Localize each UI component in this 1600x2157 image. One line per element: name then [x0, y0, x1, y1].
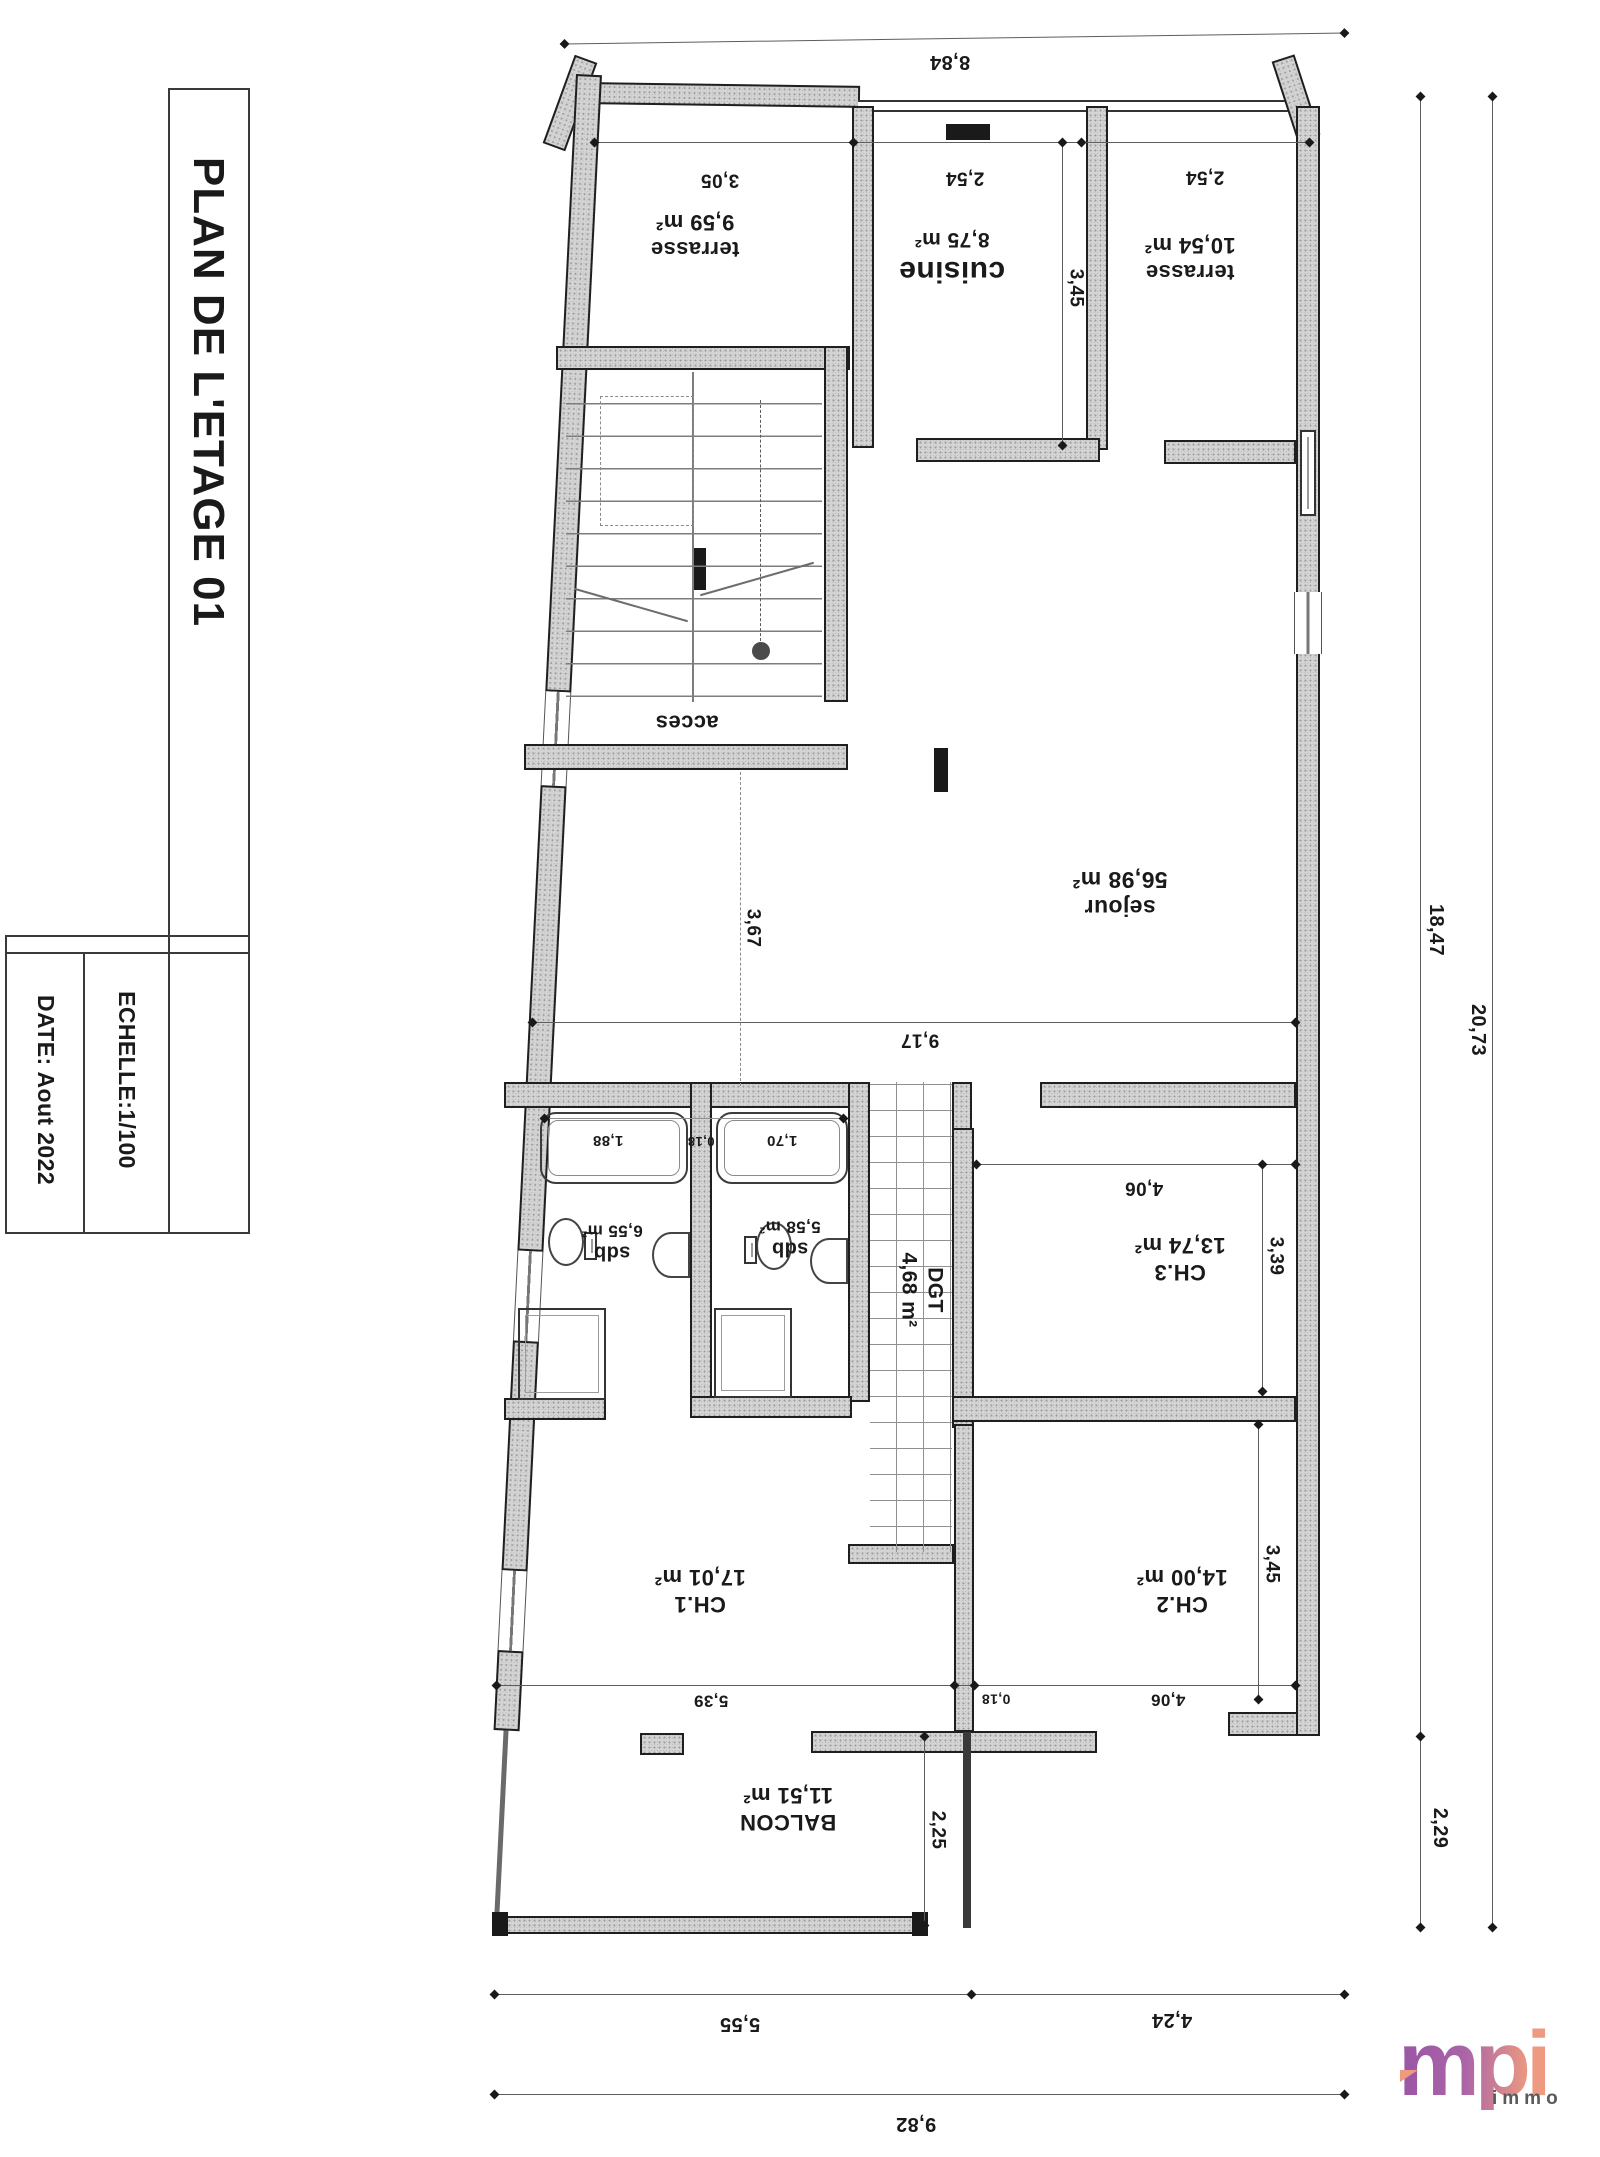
room-name: acces [655, 709, 718, 736]
dim-tick [1077, 138, 1087, 148]
dim-line-bottom-split [494, 1994, 1345, 1995]
wall-stair-top [556, 346, 850, 370]
room-area: 11,51 m² [740, 1781, 837, 1808]
dim-line-ch3-depth [1262, 1164, 1263, 1392]
page-title: PLAN DE L'ETAGE 01 [181, 157, 235, 627]
room-terrasse-left: terrasse 9,59 m² [651, 208, 740, 262]
room-sdb-left: sdb 6,55 m² [581, 1219, 642, 1264]
room-area: 4,68 m² [896, 1252, 922, 1327]
room-ch2: CH.2 14,00 m² [1136, 1563, 1227, 1617]
room-area: 5,58 m² [759, 1215, 820, 1236]
dim-line-ch3-width [976, 1164, 1296, 1165]
stair-break-line [700, 562, 814, 596]
room-name: DGT [922, 1252, 948, 1327]
room-name: BALCON [740, 1808, 837, 1835]
room-name: sdb [759, 1236, 820, 1260]
dim-cuisine-depth: 3,45 [1064, 269, 1087, 308]
window-right [1294, 592, 1322, 654]
dim-top-width: 8,84 [930, 50, 971, 74]
dim-tick [967, 1990, 977, 2000]
logo-wedge [1400, 2070, 1418, 2082]
wall-bath-top-left [504, 1082, 868, 1108]
wall-right [1296, 106, 1320, 1736]
room-area: 13,74 m² [1134, 1231, 1225, 1258]
dim-side-main: 18,47 [1424, 904, 1448, 956]
window-left [498, 1570, 528, 1651]
dim-balcony-depth: 2,25 [926, 1811, 949, 1850]
dim-ch3-width: 4,06 [1125, 1176, 1164, 1199]
wall-bath-top-right [1040, 1082, 1296, 1108]
toilet-left [548, 1218, 584, 1266]
dim-line-terraces [594, 142, 1310, 143]
scale-label: ECHELLE:1/100 [113, 991, 141, 1169]
titleblock-line [83, 952, 85, 1234]
stair-start-dot [752, 642, 770, 660]
titleblock-line [5, 935, 7, 1234]
wall-balcony-bottom [500, 1916, 920, 1934]
dim-ch2-depth: 3,45 [1260, 1545, 1283, 1584]
dim-wall-gap-ch: 0,18 [982, 1690, 1011, 1707]
wall-sdb-mid [690, 1082, 712, 1402]
floor-plan-sheet: PLAN DE L'ETAGE 01 ECHELLE:1/100 DATE: A… [0, 0, 1600, 2157]
column-top [946, 124, 990, 140]
dim-bathtub-left: 1,88 [593, 1131, 624, 1149]
balcony-left-edge [495, 1730, 509, 1912]
wall-kitchen-right [1086, 106, 1108, 450]
wall-kitchen-bottom [916, 438, 1100, 462]
room-sdb-right: sdb 5,58 m² [759, 1215, 820, 1260]
shower-left [518, 1308, 606, 1400]
titleblock-line [5, 1232, 250, 1234]
dim-balcony-width: 5,55 [720, 2012, 761, 2036]
wall-sdb-right-bottom [690, 1396, 852, 1418]
room-balcon: BALCON 11,51 m² [740, 1781, 837, 1835]
titleblock-line [5, 935, 250, 937]
room-name: sejour [1072, 894, 1167, 922]
dim-ch2-width: 4,06 [1151, 1689, 1186, 1710]
dim-line-top-width [564, 33, 1345, 45]
room-ch1: CH.1 17,01 m² [654, 1563, 745, 1617]
stair-walk-line [760, 400, 761, 646]
dim-line-sejour-width [532, 1022, 1296, 1023]
dim-line-bottom-total [494, 2094, 1345, 2095]
wall-kitchen-left [852, 106, 874, 448]
room-name: terrasse [651, 235, 740, 262]
toilet-tank-right [744, 1236, 757, 1264]
wall-acces-bottom [524, 744, 848, 770]
window-left [541, 691, 572, 786]
dim-cuisine-width: 2,54 [946, 166, 985, 189]
room-cuisine: cuisine 8,75 m² [899, 227, 1005, 289]
sink-left [652, 1232, 690, 1278]
room-name: sdb [581, 1240, 642, 1264]
dim-tick [1416, 1732, 1426, 1742]
wall-left-segment [494, 1650, 524, 1731]
room-area: 10,54 m² [1144, 231, 1235, 258]
balcony-right-edge [963, 1732, 971, 1928]
room-area: 14,00 m² [1136, 1563, 1227, 1590]
staircase [566, 372, 822, 702]
wall-ch1-bottom [640, 1733, 684, 1755]
dim-wall-gap-sdb: 0,18 [688, 1133, 715, 1149]
wall-ch3-bottom [952, 1396, 1296, 1422]
titleblock-line [5, 952, 250, 954]
wall-stair-right [824, 346, 848, 702]
room-name: CH.2 [1136, 1590, 1227, 1617]
dim-right-wing-width: 4,24 [1152, 2008, 1193, 2032]
dim-line-side-total [1492, 96, 1493, 1928]
titleblock-line [168, 88, 170, 1234]
dim-sejour-width: 9,17 [901, 1028, 940, 1051]
room-area: 8,75 m² [899, 227, 1005, 253]
titleblock-line [168, 88, 250, 90]
dim-line-balcony-depth [924, 1736, 925, 1926]
dim-line-side-main [1420, 96, 1421, 1928]
room-name: cuisine [899, 253, 1005, 290]
dim-bottom-total: 9,82 [896, 2112, 937, 2136]
dim-terrasse-left-width: 3,05 [701, 168, 740, 191]
room-acces: acces [655, 709, 718, 736]
railing-top [858, 100, 1298, 112]
dim-ch1-width: 5,39 [694, 1690, 729, 1711]
room-area: 17,01 m² [654, 1563, 745, 1590]
room-name: terrasse [1144, 258, 1235, 285]
dim-side-total: 20,73 [1466, 1004, 1490, 1056]
room-area: 6,55 m² [581, 1219, 642, 1240]
dim-line-cuisine-depth [1062, 142, 1063, 446]
wall-dgt-right [952, 1128, 974, 1428]
dim-ch3-depth: 3,39 [1264, 1237, 1287, 1276]
pillar-sejour-mid [934, 748, 948, 792]
dim-line-tubs [544, 1118, 844, 1119]
room-area: 9,59 m² [651, 208, 740, 235]
stair-break-line [574, 588, 688, 622]
dim-bathtub-right: 1,70 [767, 1131, 798, 1149]
logo: mpi immo [1398, 2018, 1578, 2138]
dim-line-bedrooms [496, 1685, 1296, 1686]
duct-right [1300, 430, 1316, 516]
dim-side-balcony: 2,29 [1428, 1808, 1452, 1849]
balcony-cap-left [492, 1912, 508, 1936]
wall-sdb-right [848, 1082, 870, 1402]
dim-line-ch2-depth [1258, 1424, 1259, 1700]
wall-ch-mid-bottom [811, 1731, 1097, 1753]
dim-sejour-depth: 3,67 [741, 909, 764, 948]
room-degagement: DGT 4,68 m² [896, 1252, 947, 1327]
wall-top-terrace [590, 82, 860, 108]
titleblock-line [248, 88, 250, 1234]
room-name: CH.1 [654, 1590, 745, 1617]
room-ch3: CH.3 13,74 m² [1134, 1231, 1225, 1285]
shower-right [714, 1308, 792, 1398]
logo-suffix: immo [1492, 2088, 1563, 2110]
stair-opening [600, 396, 694, 526]
date-label: DATE: Aout 2022 [32, 995, 60, 1185]
room-sejour: sejour 56,98 m² [1072, 866, 1167, 922]
dim-terrasse-right-width: 2,54 [1186, 165, 1225, 188]
room-name: CH.3 [1134, 1258, 1225, 1285]
room-terrasse-right: terrasse 10,54 m² [1144, 231, 1235, 285]
wall-ch3-jamb [952, 1082, 972, 1130]
room-area: 56,98 m² [1072, 866, 1167, 894]
wall-ch2-bottom [1228, 1712, 1298, 1736]
wall-terrace-right-bottom [1164, 440, 1296, 464]
wall-sdb-left-bottom [504, 1398, 606, 1420]
